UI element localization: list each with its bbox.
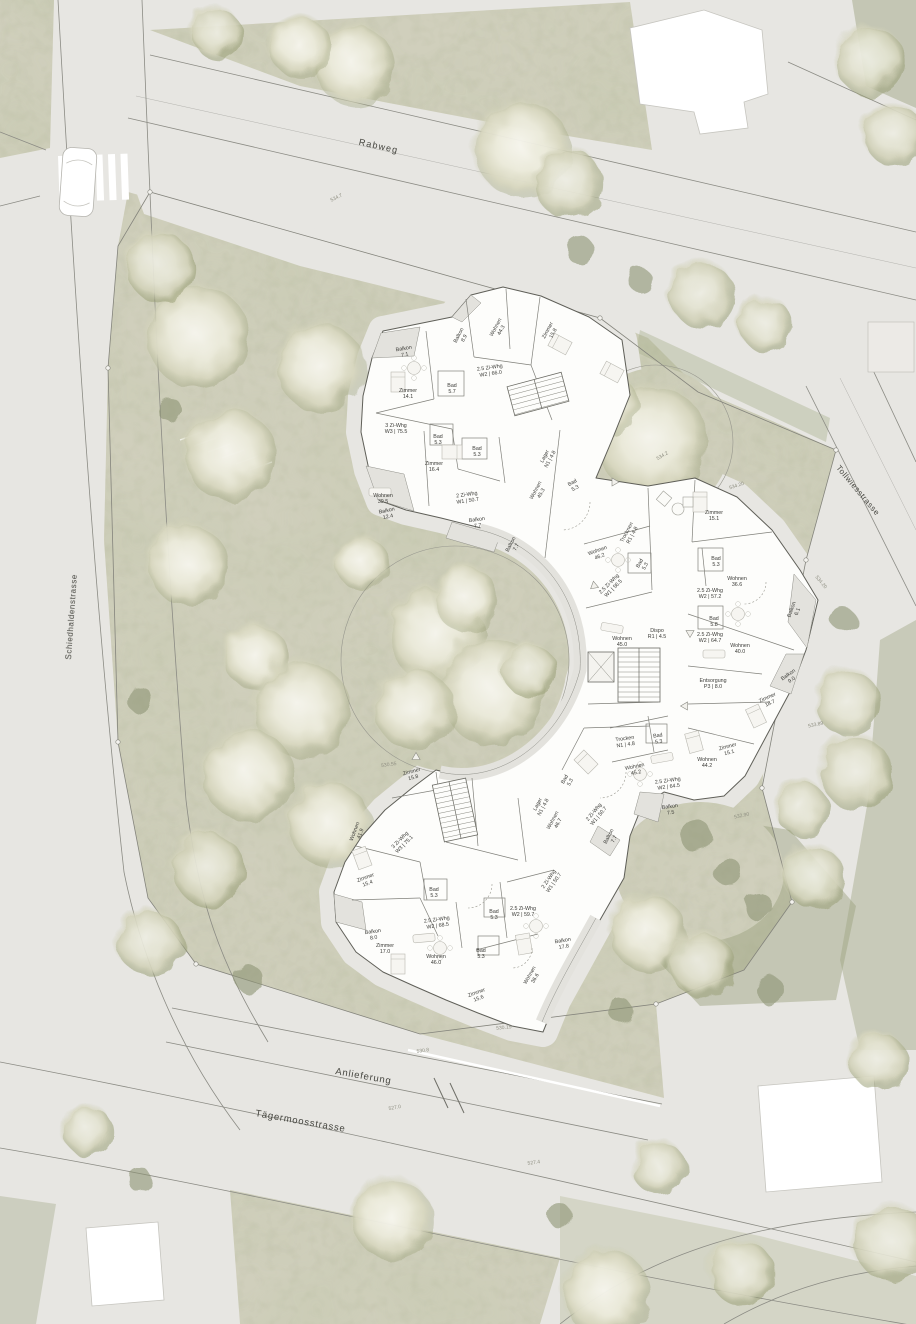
bush <box>158 398 182 422</box>
bed <box>391 954 405 974</box>
room-label-area: 16.4 <box>429 467 439 473</box>
neighbor-shed-e <box>868 322 914 372</box>
room-label-name: Bad <box>476 948 485 954</box>
room-label-name: 2.5 Zi-Whg <box>697 632 723 638</box>
room-label-name: Bad <box>429 887 438 893</box>
room-label-area: 5.3 <box>490 915 497 921</box>
room-label-area: 45.0 <box>617 642 627 648</box>
bush <box>680 820 712 852</box>
room-label: Bad5.3 <box>476 948 485 960</box>
room-label-area: 17.0 <box>380 949 390 955</box>
room-label-area: 46.0 <box>431 960 441 966</box>
room-label: 3 Zi-WhgW3 | 75.5 <box>385 423 408 435</box>
bush <box>548 1204 572 1228</box>
bed <box>515 933 532 955</box>
room-label-area: 5.3 <box>477 954 484 960</box>
room-label-area: 39.5 <box>378 499 388 505</box>
room-label-name: Bad <box>447 383 456 389</box>
room-label: Bad5.3 <box>489 909 498 921</box>
room-label-name: 2.5 Zi-Whg <box>510 906 536 912</box>
room-label-area: 5.3 <box>473 452 480 458</box>
elevator-shaft <box>588 652 614 682</box>
room-label-area: W2 | 57.2 <box>699 594 722 600</box>
room-label-area: W2 | 64.7 <box>699 638 722 644</box>
room-label-area: 8.0 <box>370 935 378 942</box>
site-plan-canvas: Rabweg Schiedhaldenstrasse Tollwiesstras… <box>0 0 916 1324</box>
room-label-name: 2.5 Zi-Whg <box>697 588 723 594</box>
bush <box>127 687 153 713</box>
room-label-name: 3 Zi-Whg <box>385 423 407 429</box>
room-label-area: 5.3 <box>430 893 437 899</box>
room-label-area: 5.8 <box>710 622 717 628</box>
room-label-name: Entsorgung <box>699 678 726 684</box>
room-label-area: 44.2 <box>702 763 712 769</box>
bed <box>442 445 462 459</box>
room-label-area: 5.3 <box>434 440 441 446</box>
room-label-area: 5.3 <box>712 562 719 568</box>
bush <box>628 268 652 292</box>
bush <box>832 608 856 632</box>
room-label-name: Wohnen <box>612 636 632 642</box>
bush <box>756 976 784 1004</box>
room-label-name: Bad <box>711 556 720 562</box>
neighbor-building-sw <box>86 1222 164 1306</box>
room-label-area: 36.6 <box>732 582 742 588</box>
bush <box>714 858 742 886</box>
room-label: Bad5.8 <box>709 616 718 628</box>
bush <box>128 1168 152 1192</box>
sofa <box>703 650 725 658</box>
room-label-area: 40.0 <box>735 649 745 655</box>
room-label: 2.5 Zi-WhgW2 | 57.2 <box>697 588 723 600</box>
bush <box>236 966 264 994</box>
bed <box>693 492 707 512</box>
room-label-area: W3 | 75.5 <box>385 429 408 435</box>
bush <box>746 894 774 922</box>
room-label-name: Zimmer <box>705 510 723 516</box>
room-label-area: 5.7 <box>448 389 455 395</box>
room-label-name: Zimmer <box>376 943 394 949</box>
room-label: Bad5.3 <box>472 446 481 458</box>
stair-core <box>618 648 660 702</box>
room-label-name: Zimmer <box>399 388 417 394</box>
room-label: 2.5 Zi-WhgW2 | 64.7 <box>697 632 723 644</box>
room-label-name: Bad <box>709 616 718 622</box>
room-label-name: Bad <box>472 446 481 452</box>
room-label-name: Dispo <box>650 628 664 634</box>
room-label: TrockenN1 | 4.8 <box>615 735 636 750</box>
room-label-area: 7.7 <box>474 523 482 530</box>
room-label: Bad5.3 <box>429 887 438 899</box>
room-label-area: 15.1 <box>709 516 719 522</box>
room-label-name: Bad <box>433 434 442 440</box>
room-label: Bad5.3 <box>711 556 720 568</box>
room-label: Bad5.7 <box>447 383 456 395</box>
room-label-area: P3 | 8.0 <box>704 684 722 690</box>
bush <box>566 236 594 264</box>
room-label-name: Wohnen <box>697 757 717 763</box>
room-label-area: 7.1 <box>401 352 409 359</box>
room-label-name: Wohnen <box>373 493 393 499</box>
sofa <box>413 933 436 943</box>
room-label-name: Zimmer <box>425 461 443 467</box>
room-label-name: Bad <box>489 909 498 915</box>
room-label: 2.5 Zi-WhgW2 | 59.7 <box>510 906 536 918</box>
room-label: DispoR1 | 4.5 <box>648 628 667 640</box>
room-label-area: 7.5 <box>667 810 675 817</box>
room-label-area: R1 | 4.5 <box>648 634 667 640</box>
room-label-name: Wohnen <box>727 576 747 582</box>
vehicle <box>59 147 98 217</box>
room-label-name: Wohnen <box>426 954 446 960</box>
neighbor-building-se <box>758 1076 882 1192</box>
bush <box>608 998 632 1022</box>
site-plan: Rabweg Schiedhaldenstrasse Tollwiesstras… <box>0 0 916 1324</box>
room-label-area: W2 | 59.7 <box>512 912 535 918</box>
room-label-area: 14.1 <box>403 394 413 400</box>
room-label-area: 5.3 <box>655 739 663 746</box>
room-label: Bad5.3 <box>433 434 442 446</box>
room-label-name: Wohnen <box>730 643 750 649</box>
